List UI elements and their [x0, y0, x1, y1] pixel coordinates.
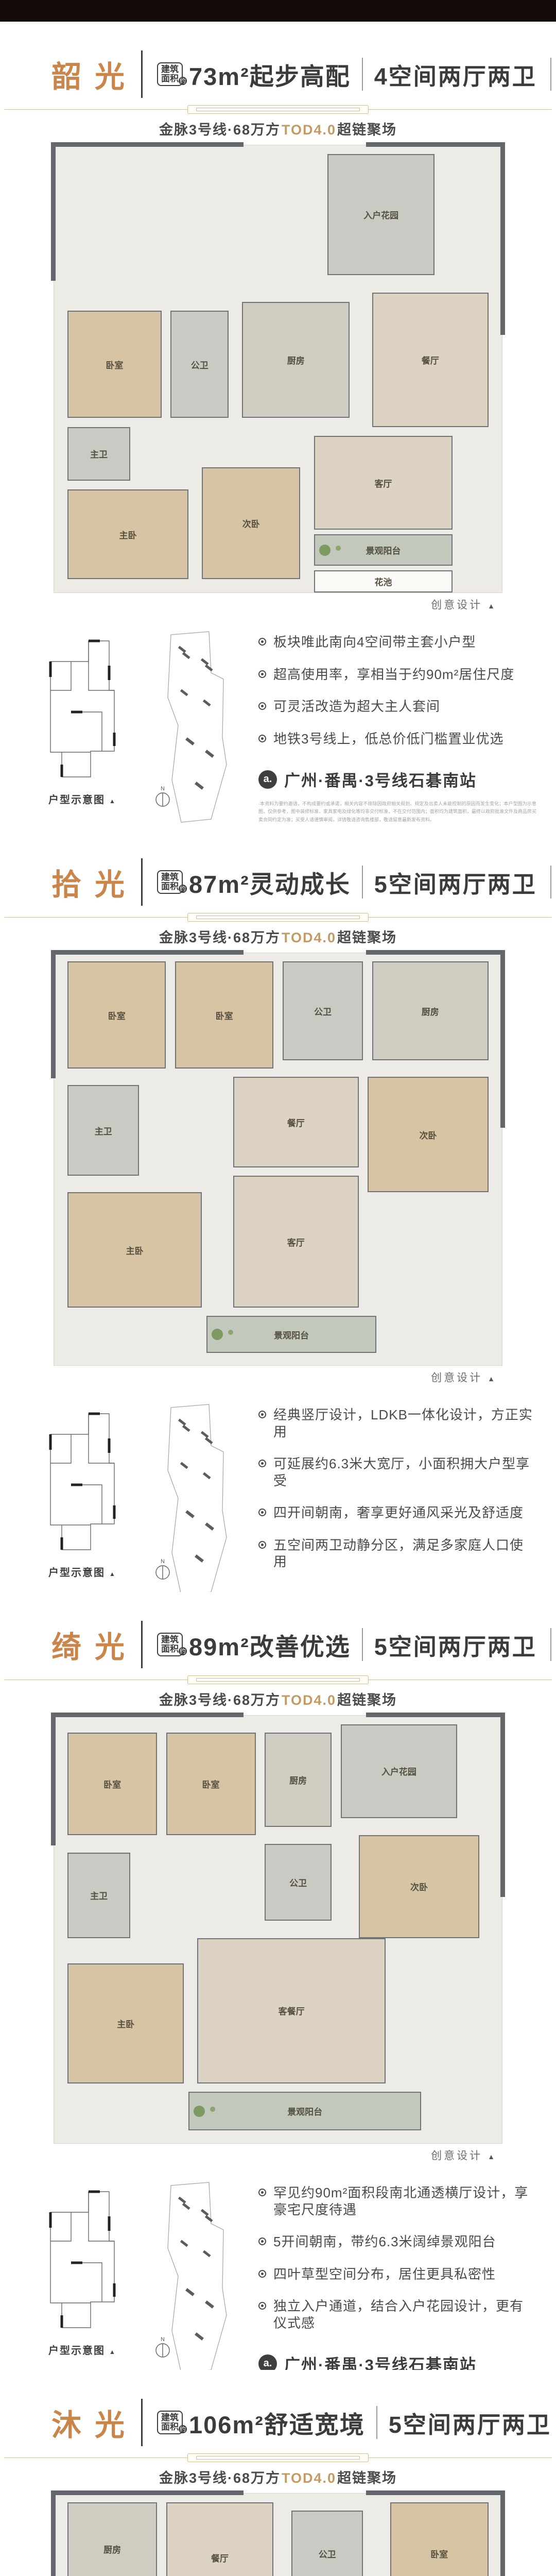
- bullet-list: 板块唯此南向4空间带主套小户型超高使用率，享相当于约90m²居住尺度可灵活改造为…: [258, 630, 536, 747]
- bullet-text: 超高使用率，享相当于约90m²居住尺度: [273, 666, 514, 683]
- approx-mark: 约: [179, 77, 187, 85]
- info-left-drawings: 户型示意图▲: [41, 2180, 237, 2370]
- badge-line1: 建筑: [161, 2413, 179, 2422]
- room-spec: 5空间两厅两卫: [374, 866, 537, 899]
- room-label: 卧室: [202, 1777, 220, 1790]
- room: 公卫: [170, 311, 229, 418]
- header-separator: [362, 58, 363, 91]
- room: 厨房: [242, 302, 350, 418]
- room-label: 卧室: [216, 1009, 233, 1022]
- subtitle-prefix: 金脉3号线·68万方: [159, 2470, 281, 2486]
- subtitle-prefix: 金脉3号线·68万方: [159, 930, 281, 945]
- subtitle-highlight: TOD4.0: [281, 122, 337, 138]
- location-text: 广州·番禺·3号线石碁南站: [284, 2352, 477, 2370]
- bullet-item: 五空间两卫动静分区，满足多家庭人口使用: [258, 1537, 536, 1570]
- site-plan-schematic: N 户型位置示意图▲: [147, 1402, 238, 1592]
- area-tagline: 舒适宽境: [264, 2411, 365, 2438]
- header-separator-end: [550, 866, 551, 899]
- room: 客厅: [233, 1176, 359, 1308]
- subtitle-suffix: 超链聚场: [337, 2470, 397, 2486]
- room-label: 入户花园: [381, 1765, 416, 1777]
- decorative-divider: [0, 1670, 556, 1689]
- room-label: 入户花园: [363, 208, 398, 221]
- room: 卧室: [67, 311, 162, 418]
- room-label: 厨房: [287, 353, 305, 366]
- bullet-list: 罕见约90m²面积段南北通透横厅设计，享豪宅尺度待遇5开间朝南，带约6.3米阔绰…: [258, 2180, 536, 2331]
- info-block: 户型示意图▲: [0, 1385, 556, 1592]
- unit-schematic: 户型示意图▲: [41, 1402, 124, 1592]
- info-block: 户型示意图▲: [0, 2163, 556, 2370]
- room: 主卧: [67, 1963, 184, 2083]
- project-subtitle: 金脉3号线·68万方TOD4.0超链聚场: [0, 1689, 556, 1713]
- north-arrow-icon: ▲: [488, 1375, 497, 1383]
- room: 公卫: [265, 1844, 332, 1921]
- section-header: 拾光 建筑 面积 约 87m²灵动成长 5空间两厅两卫: [0, 829, 556, 908]
- room-label: 公卫: [289, 1876, 307, 1889]
- section-title: 沐光: [51, 2401, 138, 2444]
- bullet-item: 板块唯此南向4空间带主套小户型: [258, 634, 536, 651]
- unit-caption-text: 户型示意图: [48, 1567, 105, 1579]
- compass-n-label: N: [161, 786, 165, 792]
- room-label: 厨房: [103, 2543, 121, 2555]
- subtitle-highlight: TOD4.0: [281, 930, 337, 945]
- bullet-item: 地铁3号线上，低总价低门槛置业优选: [258, 731, 536, 748]
- room: 次卧: [202, 467, 300, 579]
- section-header: 沐光 建筑 面积 约 106m²舒适宽境 5空间两厅两卫: [0, 2370, 556, 2448]
- room: 餐厅: [233, 1077, 359, 1167]
- unit-section: 拾光 建筑 面积 约 87m²灵动成长 5空间两厅两卫 金脉3号线·68万方TO…: [0, 829, 556, 1592]
- bullet-icon: [258, 1541, 266, 1549]
- area-tagline: 改善优选: [250, 1633, 351, 1660]
- site-plan-drawing: N: [151, 2180, 234, 2370]
- subtitle-prefix: 金脉3号线·68万方: [159, 122, 281, 138]
- site-plan-drawing: N: [151, 630, 234, 825]
- location-row: a. 广州·番禺·3号线石碁南站: [258, 768, 536, 791]
- header-separator: [362, 1628, 363, 1661]
- room-label: 餐厅: [287, 1116, 305, 1129]
- bullet-text: 独立入户通道，结合入户花园设计，更有仪式感: [273, 2298, 536, 2331]
- divider-capsule-inner: [196, 108, 360, 111]
- badge-line2: 面积: [161, 882, 179, 891]
- room-label: 客餐厅: [279, 2004, 305, 2017]
- header-divider-bar: [141, 1621, 143, 1668]
- north-arrow-icon: ▲: [488, 2153, 497, 2161]
- unit-section: 绮光 建筑 面积 约 89m²改善优选 5空间两厅两卫 金脉3号线·68万方TO…: [0, 1592, 556, 2370]
- room-label: 次卧: [242, 517, 260, 530]
- room-spec: 5空间两厅两卫: [389, 2406, 551, 2439]
- project-subtitle: 金脉3号线·68万方TOD4.0超链聚场: [0, 2467, 556, 2490]
- top-dark-bar: [0, 0, 556, 22]
- bullet-list: 经典竖厅设计，LDKB一体化设计，方正实用可延展约6.3米大宽厅，小面积拥大户型…: [258, 1402, 536, 1570]
- floor-plan-wrap: 厨房餐厅公卫卧室卧室客厅衣帽间主卫主卧卧室景观阳台 创意设计▲: [54, 2494, 502, 2576]
- divider-capsule-inner: [196, 916, 360, 919]
- info-left-drawings: 户型示意图▲: [41, 630, 237, 829]
- bullet-text: 可灵活改造为超大主人套间: [273, 698, 440, 715]
- section-header: 韶光 建筑 面积 约 73m²起步高配 4空间两厅两卫: [0, 22, 556, 100]
- room-label: 公卫: [314, 1005, 332, 1018]
- room-label: 次卧: [419, 1128, 437, 1141]
- location-row: a. 广州·番禺·3号线石碁南站: [258, 2352, 536, 2370]
- bullet-item: 经典竖厅设计，LDKB一体化设计，方正实用: [258, 1406, 536, 1440]
- room: 花池: [314, 570, 453, 592]
- floor-plan-wrap: 卧室卧室公卫厨房主卫餐厅次卧主卧客厅景观阳台 创意设计▲: [54, 953, 502, 1385]
- bullet-item: 四开间朝南，奢享更好通风采光及舒适度: [258, 1504, 536, 1521]
- section-title: 绮光: [51, 1623, 138, 1666]
- room-label: 花池: [374, 575, 392, 588]
- room: 客厅: [314, 436, 453, 530]
- bullet-item: 超高使用率，享相当于约90m²居住尺度: [258, 666, 536, 683]
- project-subtitle: 金脉3号线·68万方TOD4.0超链聚场: [0, 926, 556, 950]
- site-plan-schematic: N 户型位置示意图▲: [147, 2180, 238, 2370]
- bullet-text: 5开间朝南，带约6.3米阔绰景观阳台: [273, 2233, 496, 2250]
- room: 主卫: [67, 1085, 139, 1176]
- bullet-icon: [258, 2189, 266, 2196]
- subtitle-suffix: 超链聚场: [337, 122, 397, 138]
- divider-line-right: [369, 917, 552, 918]
- room-label: 公卫: [191, 358, 208, 371]
- unit-schematic-caption: 户型示意图▲: [48, 791, 116, 806]
- brand-logo: a.: [258, 770, 277, 789]
- divider-capsule: [187, 2453, 369, 2462]
- room-label: 主卧: [126, 1244, 144, 1257]
- floor-plan: 入户花园卧室公卫厨房餐厅主卫主卧次卧客厅景观阳台花池: [54, 145, 502, 592]
- unit-schematic-drawing: [41, 1402, 124, 1557]
- section-header: 绮光 建筑 面积 约 89m²改善优选 5空间两厅两卫: [0, 1592, 556, 1670]
- room: 卧室: [166, 1733, 256, 1835]
- room: 厨房: [372, 961, 489, 1060]
- divider-capsule: [187, 913, 369, 922]
- area-value: 106m²: [189, 2411, 264, 2438]
- header-divider-bar: [141, 858, 143, 906]
- design-caption-text: 创意设计: [431, 2150, 482, 2162]
- badge-line2: 面积: [161, 74, 179, 83]
- room: 厨房: [265, 1733, 332, 1827]
- badge-line2: 面积: [161, 1645, 179, 1654]
- unit-schematic: 户型示意图▲: [41, 630, 124, 829]
- room: 厨房: [67, 2502, 157, 2576]
- bullet-icon: [258, 638, 266, 646]
- room-label: 卧室: [108, 1009, 126, 1022]
- bullet-item: 可灵活改造为超大主人套间: [258, 698, 536, 715]
- area-value: 73m²: [189, 63, 250, 90]
- floor-plan: 厨房餐厅公卫卧室卧室客厅衣帽间主卫主卧卧室景观阳台: [54, 2494, 502, 2576]
- decorative-divider: [0, 2448, 556, 2467]
- brand-logo-text: a.: [264, 2358, 272, 2369]
- room: 次卧: [368, 1077, 489, 1192]
- bullet-text: 地铁3号线上，低总价低门槛置业优选: [273, 731, 503, 748]
- subtitle-highlight: TOD4.0: [281, 1692, 337, 1708]
- room: 景观阳台: [188, 2092, 421, 2130]
- room: 卧室: [390, 2502, 489, 2576]
- room-label: 公卫: [319, 2547, 336, 2560]
- area-headline: 89m²改善优选: [189, 1627, 351, 1663]
- decorative-divider: [0, 100, 556, 118]
- approx-mark: 约: [179, 1647, 187, 1655]
- unit-caption-text: 户型示意图: [48, 2345, 105, 2357]
- area-value: 89m²: [189, 1633, 250, 1660]
- compass-n-label: N: [161, 1558, 165, 1565]
- divider-line-right: [369, 1680, 552, 1680]
- unit-caption-arrow-icon: ▲: [109, 2348, 116, 2355]
- room: 公卫: [291, 2511, 363, 2576]
- room-label: 主卧: [117, 2017, 134, 2030]
- divider-line-right: [369, 109, 552, 110]
- unit-section: 韶光 建筑 面积 约 73m²起步高配 4空间两厅两卫 金脉3号线·68万方TO…: [0, 22, 556, 829]
- location-text: 广州·番禺·3号线石碁南站: [284, 768, 477, 791]
- bullet-item: 罕见约90m²面积段南北通透横厅设计，享豪宅尺度待遇: [258, 2184, 536, 2218]
- info-right-text: 板块唯此南向4空间带主套小户型超高使用率，享相当于约90m²居住尺度可灵活改造为…: [258, 630, 536, 829]
- divider-capsule-inner: [196, 2456, 360, 2460]
- room: 主卧: [67, 1192, 202, 1308]
- design-caption: 创意设计▲: [54, 592, 502, 612]
- brand-logo-text: a.: [264, 773, 272, 785]
- unit-caption-arrow-icon: ▲: [109, 1570, 116, 1578]
- subtitle-highlight: TOD4.0: [281, 2470, 337, 2486]
- room: 主卧: [67, 489, 188, 579]
- unit-schematic-drawing: [41, 630, 124, 784]
- room-label: 厨房: [289, 1773, 307, 1786]
- north-arrow-icon: ▲: [488, 602, 497, 610]
- room-label: 客厅: [374, 477, 392, 489]
- bullet-text: 五空间两卫动静分区，满足多家庭人口使用: [273, 1537, 536, 1570]
- bullet-icon: [258, 670, 266, 678]
- bullet-item: 可延展约6.3米大宽厅，小面积拥大户型享受: [258, 1455, 536, 1489]
- room: 景观阳台: [314, 534, 453, 566]
- room-label: 客厅: [287, 1235, 305, 1248]
- room: 卧室: [67, 1733, 157, 1835]
- info-block: 户型示意图▲: [0, 612, 556, 829]
- design-caption: 创意设计▲: [54, 1365, 502, 1385]
- floor-plan: 卧室卧室公卫厨房主卫餐厅次卧主卧客厅景观阳台: [54, 953, 502, 1365]
- room: 入户花园: [341, 1724, 457, 1819]
- divider-line-left: [4, 917, 187, 918]
- unit-schematic-drawing: [41, 2180, 124, 2335]
- sections-container: 韶光 建筑 面积 约 73m²起步高配 4空间两厅两卫 金脉3号线·68万方TO…: [0, 22, 556, 2576]
- bullet-text: 四叶草型空间分布，居住更具私密性: [273, 2266, 496, 2283]
- area-value: 87m²: [189, 871, 250, 898]
- header-separator-end: [550, 1628, 551, 1661]
- divider-line-left: [4, 1680, 187, 1680]
- bullet-item: 5开间朝南，带约6.3米阔绰景观阳台: [258, 2233, 536, 2250]
- brand-logo: a.: [258, 2354, 277, 2370]
- area-tagline: 起步高配: [250, 63, 351, 90]
- floor-plan: 入户花园卧室卧室厨房主卫公卫次卧主卧客餐厅景观阳台: [54, 1716, 502, 2143]
- room-label: 景观阳台: [287, 2105, 322, 2117]
- bullet-text: 板块唯此南向4空间带主套小户型: [273, 634, 476, 651]
- decorative-divider: [0, 908, 556, 926]
- unit-section: 沐光 建筑 面积 约 106m²舒适宽境 5空间两厅两卫 金脉3号线·68万方T…: [0, 2370, 556, 2576]
- section-title: 韶光: [51, 53, 138, 96]
- header-divider-bar: [141, 50, 143, 98]
- room-label: 厨房: [422, 1005, 439, 1018]
- unit-caption-text: 户型示意图: [48, 794, 105, 806]
- unit-schematic: 户型示意图▲: [41, 2180, 124, 2370]
- room-spec: 5空间两厅两卫: [374, 1628, 537, 1662]
- divider-capsule-inner: [196, 1678, 360, 1682]
- bullet-icon: [258, 1411, 266, 1418]
- divider-capsule: [187, 105, 369, 114]
- info-left-drawings: 户型示意图▲: [41, 1402, 237, 1592]
- header-divider-bar: [141, 2399, 143, 2446]
- room-label: 景观阳台: [366, 544, 401, 556]
- bullet-text: 四开间朝南，奢享更好通风采光及舒适度: [273, 1504, 524, 1521]
- project-subtitle: 金脉3号线·68万方TOD4.0超链聚场: [0, 118, 556, 142]
- info-right-text: 罕见约90m²面积段南北通透横厅设计，享豪宅尺度待遇5开间朝南，带约6.3米阔绰…: [258, 2180, 536, 2370]
- compass-n-label: N: [161, 2336, 165, 2343]
- room-label: 主卫: [95, 1124, 112, 1137]
- approx-mark: 约: [179, 2425, 187, 2433]
- bullet-icon: [258, 1460, 266, 1467]
- subtitle-suffix: 超链聚场: [337, 930, 397, 945]
- room: 次卧: [359, 1835, 480, 1938]
- area-headline: 87m²灵动成长: [189, 865, 351, 900]
- room: 餐厅: [372, 293, 489, 427]
- room-label: 卧室: [430, 2547, 448, 2560]
- room: 卧室: [175, 961, 273, 1069]
- section-title: 拾光: [51, 860, 138, 904]
- room: 客餐厅: [197, 1938, 385, 2083]
- room: 卧室: [67, 961, 166, 1069]
- floor-plan-wrap: 入户花园卧室公卫厨房餐厅主卫主卧次卧客厅景观阳台花池 创意设计▲: [54, 145, 502, 612]
- room: 入户花园: [327, 154, 435, 275]
- badge-line1: 建筑: [161, 65, 179, 74]
- disclaimer-fineprint: ·本资料为要约邀请，不构成要约或承诺，相关内容不排除因政府相关规划、规定及出卖人…: [258, 800, 536, 824]
- area-tagline: 灵动成长: [250, 871, 351, 898]
- bullet-text: 经典竖厅设计，LDKB一体化设计，方正实用: [273, 1406, 536, 1440]
- floor-plan-wrap: 入户花园卧室卧室厨房主卫公卫次卧主卧客餐厅景观阳台 创意设计▲: [54, 1716, 502, 2163]
- divider-line-left: [4, 2458, 187, 2458]
- site-plan-schematic: N 户型位置示意图▲: [147, 630, 238, 829]
- room-label: 餐厅: [211, 2551, 229, 2564]
- divider-line-right: [369, 2458, 552, 2458]
- design-caption-text: 创意设计: [431, 599, 482, 611]
- unit-schematic-caption: 户型示意图▲: [48, 2342, 116, 2357]
- bullet-text: 罕见约90m²面积段南北通透横厅设计，享豪宅尺度待遇: [273, 2184, 536, 2218]
- room: 主卫: [67, 1853, 130, 1938]
- room-label: 主卫: [90, 447, 108, 460]
- bullet-icon: [258, 735, 266, 742]
- approx-mark: 约: [179, 885, 187, 893]
- header-separator: [362, 866, 363, 899]
- subtitle-prefix: 金脉3号线·68万方: [159, 1692, 281, 1708]
- room: 主卫: [67, 427, 130, 481]
- design-caption-text: 创意设计: [431, 1372, 482, 1384]
- bullet-text: 可延展约6.3米大宽厅，小面积拥大户型享受: [273, 1455, 536, 1489]
- bullet-item: 四叶草型空间分布，居住更具私密性: [258, 2266, 536, 2283]
- badge-line1: 建筑: [161, 873, 179, 882]
- badge-line1: 建筑: [161, 1635, 179, 1645]
- unit-caption-arrow-icon: ▲: [109, 798, 116, 805]
- room: 餐厅: [166, 2502, 274, 2576]
- bullet-item: 独立入户通道，结合入户花园设计，更有仪式感: [258, 2298, 536, 2331]
- room-label: 卧室: [106, 358, 123, 371]
- bullet-icon: [258, 1509, 266, 1516]
- room-label: 主卧: [119, 528, 137, 541]
- bullet-icon: [258, 702, 266, 710]
- room-label: 主卫: [90, 1889, 108, 1902]
- info-right-text: 经典竖厅设计，LDKB一体化设计，方正实用可延展约6.3米大宽厅，小面积拥大户型…: [258, 1402, 536, 1592]
- bullet-icon: [258, 2302, 266, 2310]
- room: 景观阳台: [206, 1316, 377, 1353]
- divider-line-left: [4, 109, 187, 110]
- site-plan-drawing: N: [151, 1402, 234, 1592]
- bullet-icon: [258, 2238, 266, 2245]
- unit-schematic-caption: 户型示意图▲: [48, 1564, 116, 1579]
- area-headline: 106m²舒适宽境: [189, 2405, 365, 2441]
- header-separator-end: [550, 58, 551, 91]
- room-label: 景观阳台: [274, 1328, 309, 1341]
- header-separator: [376, 2406, 377, 2439]
- subtitle-suffix: 超链聚场: [337, 1692, 397, 1708]
- room-label: 餐厅: [422, 353, 439, 366]
- room-spec: 4空间两厅两卫: [374, 58, 537, 91]
- design-caption: 创意设计▲: [54, 2143, 502, 2163]
- room-label: 次卧: [410, 1880, 428, 1893]
- divider-capsule: [187, 1675, 369, 1684]
- area-headline: 73m²起步高配: [189, 57, 351, 92]
- bullet-icon: [258, 2270, 266, 2278]
- room-label: 卧室: [103, 1777, 121, 1790]
- badge-line2: 面积: [161, 2422, 179, 2432]
- room: 公卫: [283, 961, 363, 1060]
